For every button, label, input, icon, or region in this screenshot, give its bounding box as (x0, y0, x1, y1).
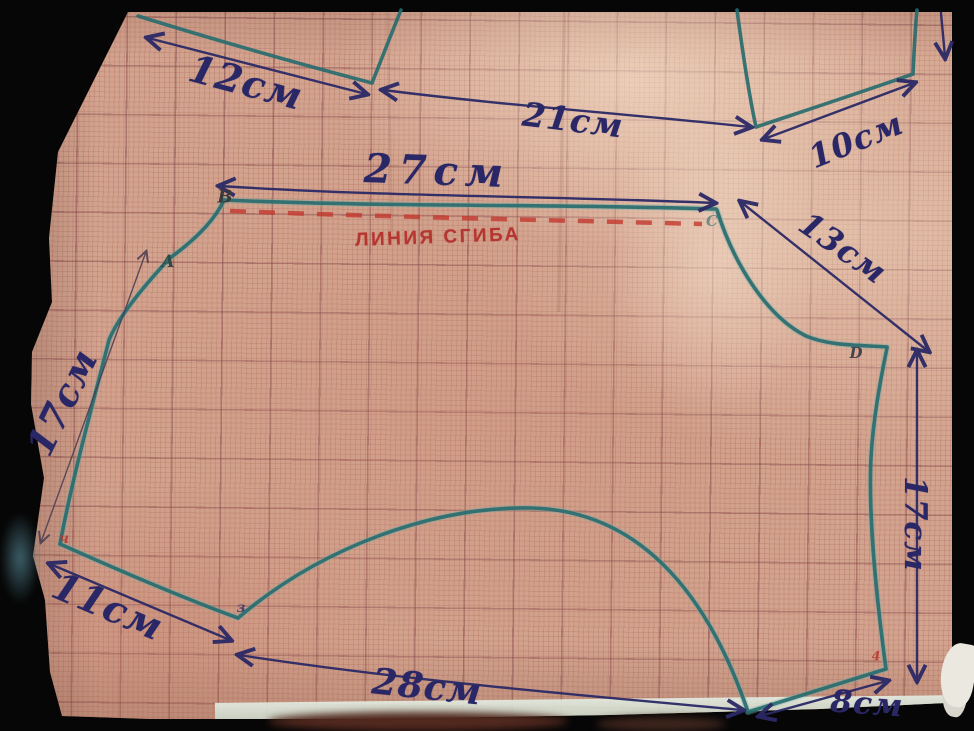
pattern-outline-underlay (60, 200, 887, 712)
upper-piece-right-up-edge (913, 10, 917, 74)
arrow-28cm (239, 655, 742, 710)
arrow-edge-tick (941, 13, 945, 57)
table-blur (596, 717, 726, 731)
table-blur (268, 712, 568, 731)
point-label-3: з (237, 600, 246, 616)
point-label-A: A (161, 252, 174, 272)
label-8cm: 8см (829, 684, 904, 725)
point-label-4-left: ч (59, 531, 69, 547)
background-smudge (0, 512, 40, 604)
main-piece-leg-arc (238, 508, 748, 712)
fold-dashed-line (230, 211, 702, 224)
point-label-C: C (706, 212, 718, 230)
point-label-B: B (217, 187, 232, 208)
upper-piece-right-down-edge (737, 10, 756, 127)
point-label-4-right: 4 (871, 650, 880, 665)
label-27cm: 27см (363, 145, 511, 197)
upper-piece-notch-edge (372, 10, 401, 83)
photo-frame: 12см 21см 10см 27см ЛИНИЯ СГИБА 13см 17с… (0, 0, 974, 731)
point-label-D: D (849, 344, 862, 362)
label-17cm-right: 17см (897, 476, 933, 572)
